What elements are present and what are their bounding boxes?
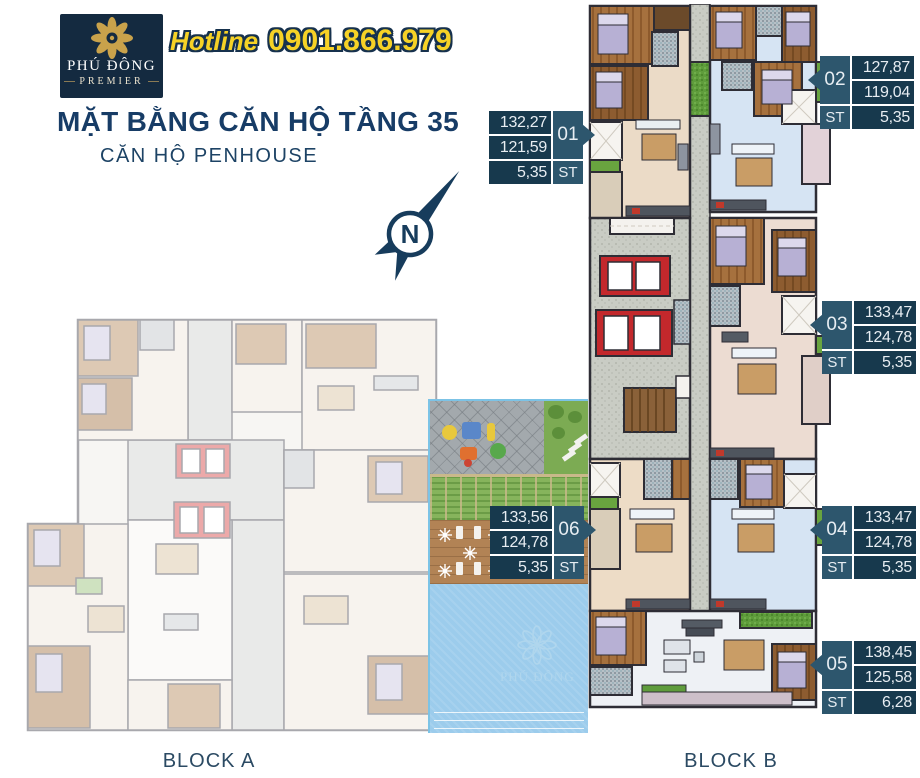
compass-north-icon: N	[348, 150, 478, 302]
apartment-label-03: 03 133,47 124,78 ST 5,35	[822, 301, 916, 374]
apartment-label-06: 133,56 06 124,78 5,35 ST	[490, 506, 584, 579]
lotus-ornament-icon	[90, 17, 134, 59]
playground-equipment	[464, 459, 472, 467]
st-area-value: 6,28	[854, 691, 916, 714]
unit-number: 02	[820, 56, 850, 104]
st-area-value: 5,35	[854, 351, 916, 374]
gross-area-value: 133,47	[854, 506, 916, 529]
lap-lane-lines	[434, 707, 584, 729]
st-area-value: 5,35	[489, 161, 551, 184]
hotline: Hotline0901.866.979	[170, 24, 452, 58]
pointer-arrow-icon	[810, 519, 823, 541]
hotline-label: Hotline	[170, 26, 258, 56]
gross-area-value: 133,47	[854, 301, 916, 324]
pointer-arrow-icon	[583, 519, 596, 541]
garden-patch	[544, 401, 588, 474]
pointer-arrow-icon	[582, 124, 595, 146]
net-area-value: 124,78	[854, 531, 916, 554]
gross-area-value: 127,87	[852, 56, 914, 79]
apartment-label-02: 02 127,87 119,04 ST 5,35	[820, 56, 914, 129]
apartment-label-05: 05 138,45 125,58 ST 6,28	[822, 641, 916, 714]
gross-area-value: 133,56	[490, 506, 552, 529]
page-title: MẶT BẰNG CĂN HỘ TẦNG 35	[57, 106, 459, 138]
pointer-arrow-icon	[810, 654, 823, 676]
hotline-number: 0901.866.979	[268, 24, 452, 57]
pool-watermark: PHÚ ĐÔNG	[500, 624, 575, 685]
net-area-value: 124,78	[490, 531, 552, 554]
pointer-arrow-icon	[810, 314, 823, 336]
unit-number: 03	[822, 301, 852, 349]
st-label: ST	[820, 106, 850, 129]
playground-equipment	[442, 425, 457, 440]
block-a-caption: BLOCK A	[144, 750, 274, 773]
penhouse-floorplan-poster: PHÚ ĐÔNG PREMIER Hotline0901.866.979 MẶT…	[0, 0, 920, 778]
umbrella-icon	[438, 564, 452, 578]
gross-area-value: 132,27	[489, 111, 551, 134]
block-a-floorplan	[18, 316, 438, 736]
playground-area	[430, 401, 588, 474]
brand-logo: PHÚ ĐÔNG PREMIER	[60, 14, 163, 98]
st-area-value: 5,35	[854, 556, 916, 579]
gross-area-value: 138,45	[854, 641, 916, 664]
compass-letter: N	[401, 219, 420, 249]
umbrella-icon	[438, 528, 452, 542]
net-area-value: 124,78	[854, 326, 916, 349]
net-area-value: 119,04	[852, 81, 914, 104]
playground-equipment	[462, 422, 481, 439]
net-area-value: 125,58	[854, 666, 916, 689]
net-area-value: 121,59	[489, 136, 551, 159]
unit-number: 01	[553, 111, 583, 159]
unit-number: 05	[822, 641, 852, 689]
st-label: ST	[554, 556, 584, 579]
st-area-value: 5,35	[490, 556, 552, 579]
st-label: ST	[822, 351, 852, 374]
brand-subname: PREMIER	[64, 76, 158, 87]
block-b-floorplan	[586, 4, 834, 712]
apartment-label-01: 132,27 01 121,59 5,35 ST	[489, 111, 583, 184]
watermark-text: PHÚ ĐÔNG	[500, 669, 575, 685]
apartment-label-04: 04 133,47 124,78 ST 5,35	[822, 506, 916, 579]
playground-equipment	[487, 423, 495, 441]
st-label: ST	[822, 556, 852, 579]
block-b-caption: BLOCK B	[666, 750, 796, 773]
umbrella-icon	[463, 546, 477, 560]
st-label: ST	[553, 161, 583, 184]
pool-water: PHÚ ĐÔNG	[430, 584, 588, 733]
st-label: ST	[822, 691, 852, 714]
st-area-value: 5,35	[852, 106, 914, 129]
watermark-ornament-icon	[514, 624, 560, 666]
pointer-arrow-icon	[808, 69, 821, 91]
unit-number: 04	[822, 506, 852, 554]
unit-number: 06	[554, 506, 584, 554]
playground-tree	[490, 443, 506, 459]
brand-name: PHÚ ĐÔNG	[67, 59, 156, 74]
page-subtitle: CĂN HỘ PENHOUSE	[100, 145, 318, 168]
